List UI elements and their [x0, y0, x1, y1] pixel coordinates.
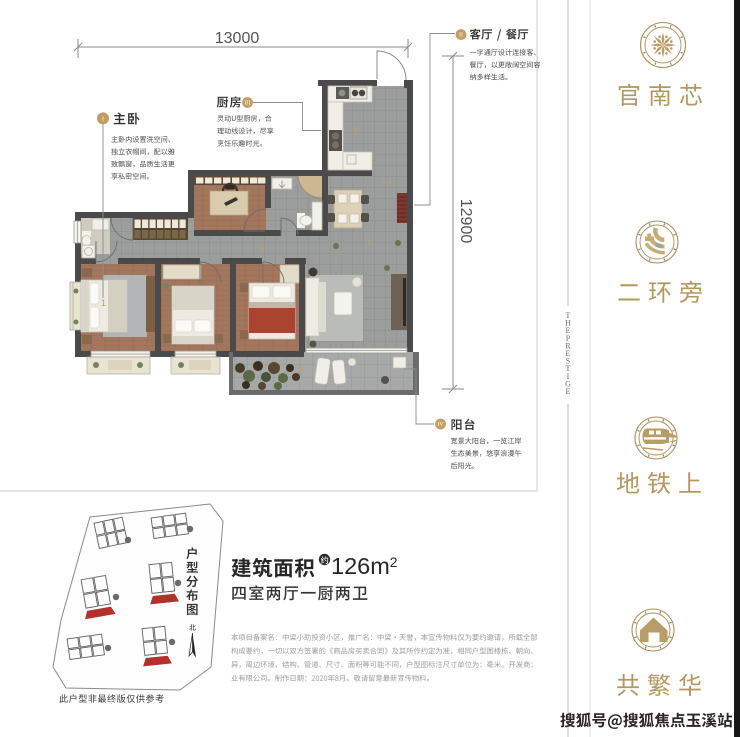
svg-text:4: 4 — [298, 364, 303, 374]
svg-text:III: III — [245, 101, 251, 107]
svg-text:3: 3 — [352, 126, 357, 136]
svg-text:126m2: 126m2 — [331, 553, 398, 579]
svg-text:IV: IV — [437, 422, 444, 428]
svg-text:2: 2 — [367, 236, 372, 246]
svg-text:II: II — [459, 33, 463, 39]
svg-text:I: I — [102, 117, 104, 123]
svg-text:THEPRESTIGE: THEPRESTIGE — [565, 311, 571, 396]
svg-text:13000: 13000 — [215, 30, 260, 47]
svg-text:1: 1 — [101, 298, 106, 308]
svg-text:12900: 12900 — [457, 199, 474, 244]
